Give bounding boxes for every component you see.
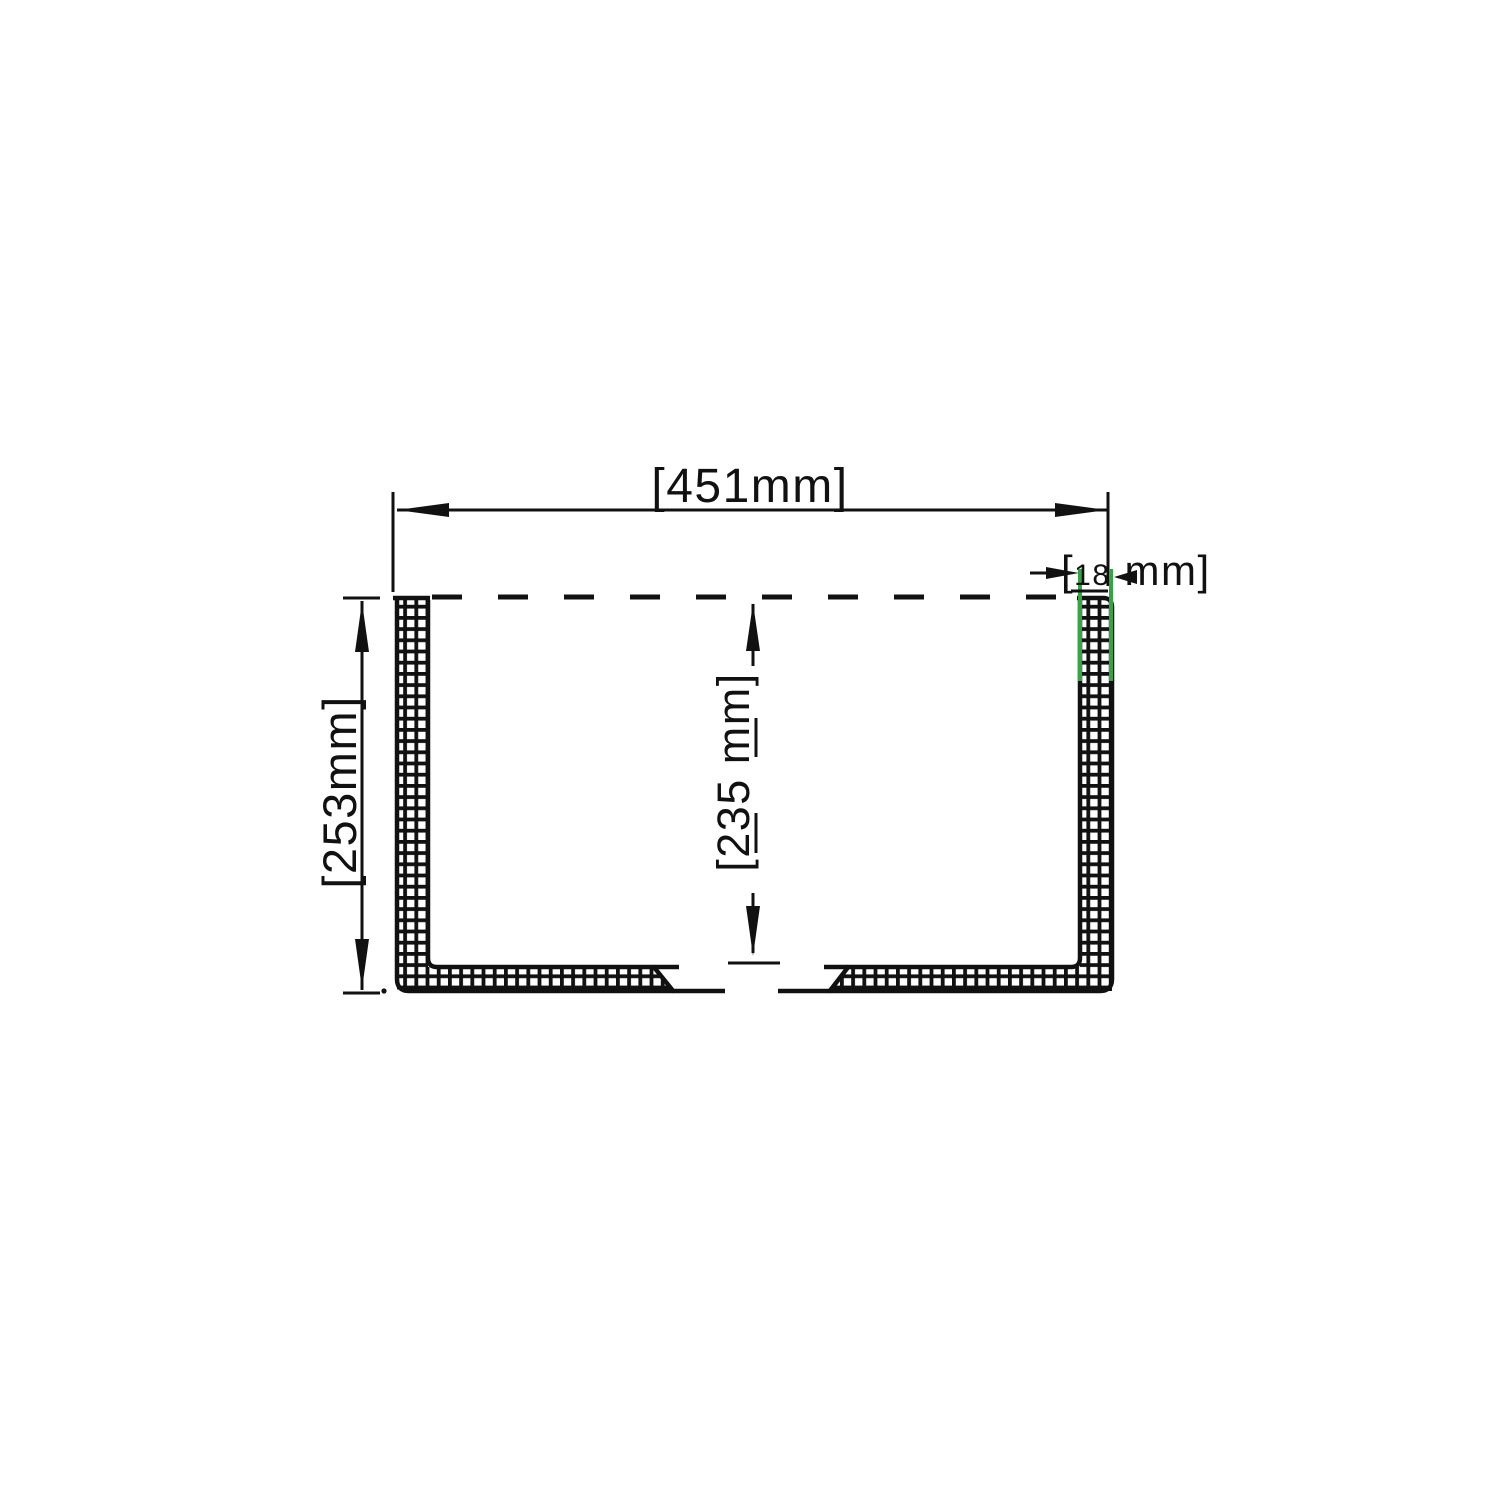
centerline-dot: [381, 988, 386, 993]
right-wall-outer-and-floor-edge: [778, 598, 1112, 991]
height-dimension-label: [253mm]: [313, 695, 366, 888]
right-wall-inner-and-floor-top-edge: [824, 600, 1080, 967]
thickness-value: 18: [1074, 559, 1110, 592]
technical-drawing: [451mm] [253mm] [235 mm]: [0, 0, 1500, 1501]
dimension-inner-height: [235 mm]: [708, 603, 780, 963]
left-wall-hatch: [397, 598, 673, 991]
height-arrow-up: [355, 602, 369, 652]
right-wall-hatch: [830, 598, 1112, 991]
thickness-dimension-label: [18mm]: [1061, 547, 1211, 594]
height-arrow-down: [355, 939, 369, 989]
width-arrow-left: [397, 503, 449, 517]
thickness-open-bracket: [: [1061, 547, 1074, 594]
drawing-canvas: [451mm] [253mm] [235 mm]: [0, 0, 1500, 1501]
inner-height-dimension-label: [235 mm]: [708, 672, 759, 872]
width-dimension-label: [451mm]: [651, 460, 848, 513]
width-arrow-right: [1055, 503, 1107, 517]
dimension-overall-width: [451mm]: [393, 460, 1108, 592]
inner-height-arrow-down: [746, 906, 760, 956]
inner-height-arrow-up: [746, 603, 760, 651]
thickness-unit: mm]: [1125, 547, 1211, 594]
left-wall-inner-and-floor-top-edge: [428, 600, 679, 967]
dimension-wall-thickness: [18mm]: [1030, 547, 1211, 681]
left-wall-outer-and-floor-edge: [397, 596, 725, 991]
dimension-overall-height: [253mm]: [313, 598, 380, 993]
